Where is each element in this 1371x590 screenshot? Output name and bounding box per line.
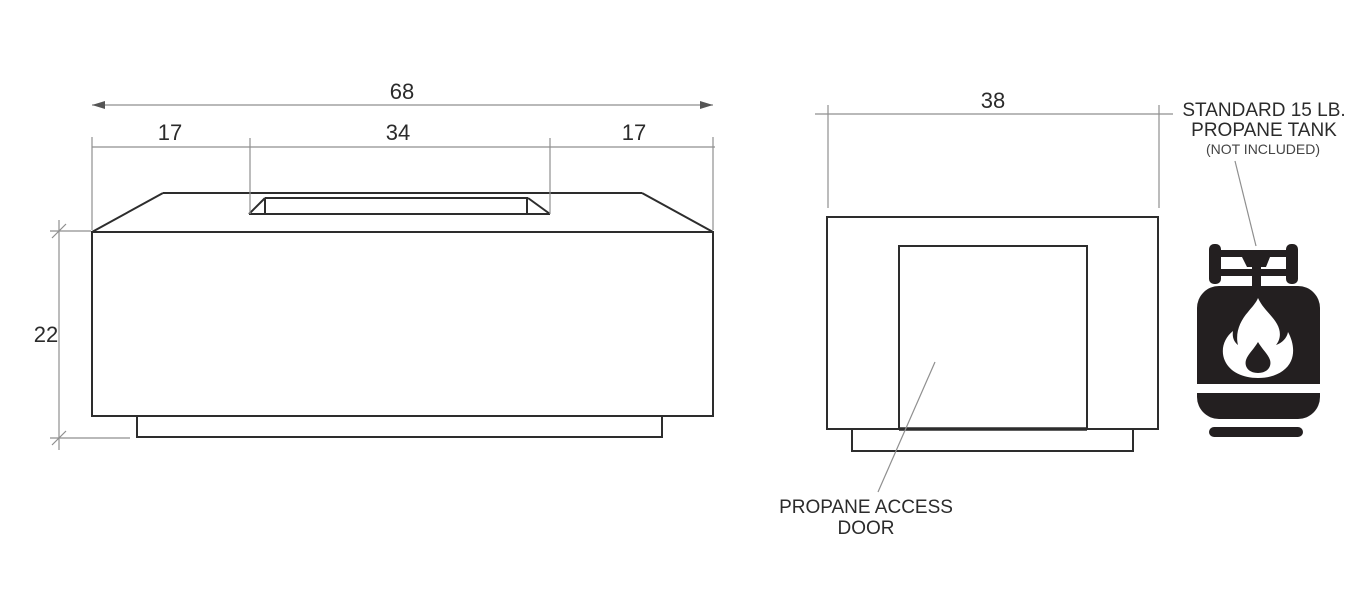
dim-value-17-left: 17 <box>158 120 182 145</box>
side-table-outline <box>827 217 1158 451</box>
dim-value-34: 34 <box>386 120 410 145</box>
dim-value-17-right: 17 <box>622 120 646 145</box>
dim-arrow-right <box>700 101 713 109</box>
door-label-line2: DOOR <box>838 518 895 539</box>
dimension-depth: 38 <box>815 88 1173 208</box>
tank-handle-top-bar <box>1215 250 1292 257</box>
tank-foot-ring <box>1209 427 1303 437</box>
table-body <box>92 232 713 416</box>
dim-arrow-left <box>92 101 105 109</box>
tank-stripe <box>1197 384 1320 393</box>
table-base-plinth <box>137 416 662 437</box>
fire-pit-dimension-drawing: 68 17 34 17 22 <box>0 0 1371 590</box>
dimension-overall-width: 68 <box>92 79 713 109</box>
dimension-sheet: 68 17 34 17 22 <box>0 0 1371 590</box>
propane-tank-callout: STANDARD 15 LB. PROPANE TANK (NOT INCLUD… <box>1182 100 1345 437</box>
tank-label-line2: PROPANE TANK <box>1191 120 1337 141</box>
front-view-drawing: 68 17 34 17 22 <box>34 79 715 450</box>
tank-valve-stem <box>1252 261 1261 289</box>
side-view-drawing: 38 PROPANE ACCESS DOOR <box>779 88 1173 539</box>
front-table-outline <box>92 193 713 437</box>
propane-access-door <box>899 246 1087 429</box>
dim-value-22: 22 <box>34 322 58 347</box>
dim-value-38: 38 <box>981 88 1005 113</box>
tank-label-line1: STANDARD 15 LB. <box>1182 100 1345 121</box>
dim-value-68: 68 <box>390 79 414 104</box>
tank-leader-line <box>1235 161 1256 246</box>
door-label-line1: PROPANE ACCESS <box>779 497 953 518</box>
tabletop-right-slant <box>642 193 713 232</box>
side-body <box>827 217 1158 429</box>
side-base-plinth <box>852 429 1133 451</box>
tank-note: (NOT INCLUDED) <box>1206 141 1320 157</box>
tabletop-left-slant <box>92 193 163 232</box>
recess-left-slant <box>249 198 265 214</box>
recess-right-slant <box>528 198 550 214</box>
door-leader-line <box>878 362 935 492</box>
propane-tank-icon <box>1197 244 1320 437</box>
burner-recess <box>249 198 550 214</box>
